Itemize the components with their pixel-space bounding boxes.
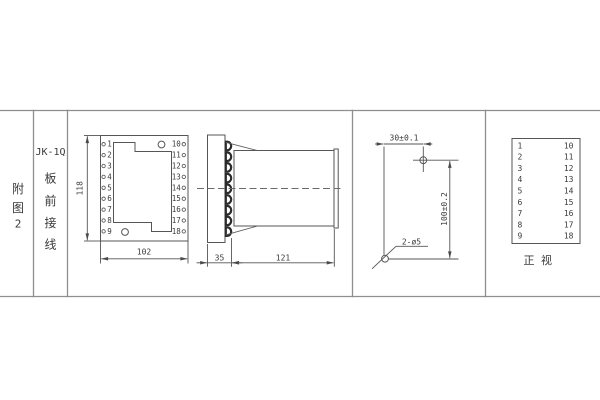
terminal-pin [102, 175, 105, 178]
table-cell: 2 [518, 153, 523, 162]
table-cell: 5 [518, 187, 523, 196]
length-dimension: 121 [232, 229, 334, 267]
mounting-label-char: 板 [44, 172, 56, 186]
table-cell: 3 [518, 164, 523, 173]
dimension-value: 102 [137, 247, 152, 256]
figure-number: 2 [15, 218, 22, 231]
terminal-bump [226, 195, 231, 204]
side-view: 35 121 [197, 135, 344, 267]
terminal-pin [102, 153, 105, 156]
dimension-value: 35 [215, 254, 225, 263]
terminal-pin [102, 143, 105, 146]
terminal-number: 4 [107, 172, 112, 181]
table-cell: 6 [518, 198, 523, 207]
dimension-value: 118 [76, 181, 85, 196]
table-cell: 17 [564, 220, 574, 229]
table-cell: 16 [564, 209, 574, 218]
terminal-pin [182, 186, 185, 189]
terminal-number: 15 [172, 194, 181, 203]
terminal-pin [102, 230, 105, 233]
terminal-pin [182, 143, 185, 146]
table-cell: 12 [564, 164, 574, 173]
terminal-pin [182, 197, 185, 200]
terminal-number: 13 [172, 172, 181, 181]
view-caption-char: 正 [524, 254, 535, 267]
table-cell: 10 [564, 141, 574, 150]
terminal-pin [182, 153, 185, 156]
terminal-number: 7 [107, 205, 112, 214]
terminal-number: 17 [172, 216, 181, 225]
front-view: 1 2 3 4 5 6 7 8 9 10 11 12 13 14 15 16 1… [76, 136, 189, 264]
table-cell: 15 [564, 198, 574, 207]
terminal-bump [226, 163, 231, 172]
title-block: 附 图 2 JK-1Q 板 前 接 线 [12, 147, 66, 252]
dimension-value: 100±0.2 [440, 192, 449, 226]
terminal-number: 18 [172, 227, 182, 236]
drawing-sheet: 附 图 2 JK-1Q 板 前 接 线 1 2 3 4 5 6 7 8 9 10… [0, 0, 600, 400]
mounting-hole [158, 141, 165, 148]
terminal-bump [226, 152, 231, 161]
table-cell: 1 [518, 141, 523, 150]
figure-label-char: 附 [12, 182, 24, 196]
mounting-label-char: 接 [44, 215, 56, 230]
terminal-number: 14 [172, 183, 182, 192]
terminal-pin [102, 197, 105, 200]
left-terminal-column: 1 2 3 4 5 6 7 8 9 [102, 140, 112, 236]
table-cell: 8 [518, 220, 523, 229]
terminal-number: 1 [107, 140, 112, 149]
terminal-pin [102, 164, 105, 167]
dimension-value: 121 [276, 254, 291, 263]
dimension-value: 30±0.1 [390, 133, 419, 142]
table-cell: 13 [564, 175, 574, 184]
terminal-number: 2 [107, 151, 112, 160]
figure-label-char: 图 [12, 201, 24, 215]
terminal-pin [102, 186, 105, 189]
terminal-table: 1 2 3 4 5 6 7 8 9 10 11 12 13 14 15 16 1… [512, 139, 580, 268]
terminal-bump [226, 174, 231, 183]
mounting-label-char: 前 [44, 193, 56, 208]
terminal-number: 5 [107, 183, 112, 192]
terminal-number: 6 [107, 194, 112, 203]
terminal-number: 9 [107, 227, 112, 236]
terminal-number: 10 [172, 140, 182, 149]
relay-body-outline [114, 143, 172, 232]
terminal-bump [226, 206, 231, 215]
terminal-number: 12 [172, 162, 181, 171]
terminal-bump [226, 217, 231, 226]
table-left-column: 1 2 3 4 5 6 7 8 9 [518, 141, 523, 240]
terminal-pin [182, 164, 185, 167]
drill-pattern: 30±0.1 100±0.2 2-ø5 [372, 133, 459, 268]
table-right-column: 10 11 12 13 14 15 16 17 18 [564, 141, 574, 240]
table-cell: 4 [518, 175, 523, 184]
model-label: JK-1Q [35, 147, 65, 158]
mounting-label-char: 线 [44, 238, 56, 252]
table-cell: 9 [518, 232, 523, 241]
table-cell: 14 [564, 187, 574, 196]
terminal-pin [182, 175, 185, 178]
technical-drawing: 附 图 2 JK-1Q 板 前 接 线 1 2 3 4 5 6 7 8 9 10… [0, 0, 600, 400]
terminal-pin [182, 219, 185, 222]
table-cell: 7 [518, 209, 523, 218]
terminal-pin [182, 230, 185, 233]
terminal-pin [102, 208, 105, 211]
table-cell: 18 [564, 232, 574, 241]
terminal-number: 3 [107, 162, 112, 171]
mounting-hole [122, 229, 129, 236]
sheet-borders [0, 110, 600, 297]
terminal-number: 11 [172, 151, 181, 160]
view-caption-char: 视 [541, 253, 552, 267]
width-dimension: 102 [101, 242, 189, 264]
terminal-number: 16 [172, 205, 182, 214]
height-dimension: 118 [76, 136, 101, 242]
right-terminal-column: 10 11 12 13 14 15 16 17 18 [172, 140, 186, 236]
terminal-number: 8 [107, 216, 112, 225]
terminal-pin [182, 208, 185, 211]
table-cell: 11 [564, 153, 574, 162]
hole-callout-label: 2-ø5 [402, 238, 421, 247]
terminal-pin [102, 219, 105, 222]
